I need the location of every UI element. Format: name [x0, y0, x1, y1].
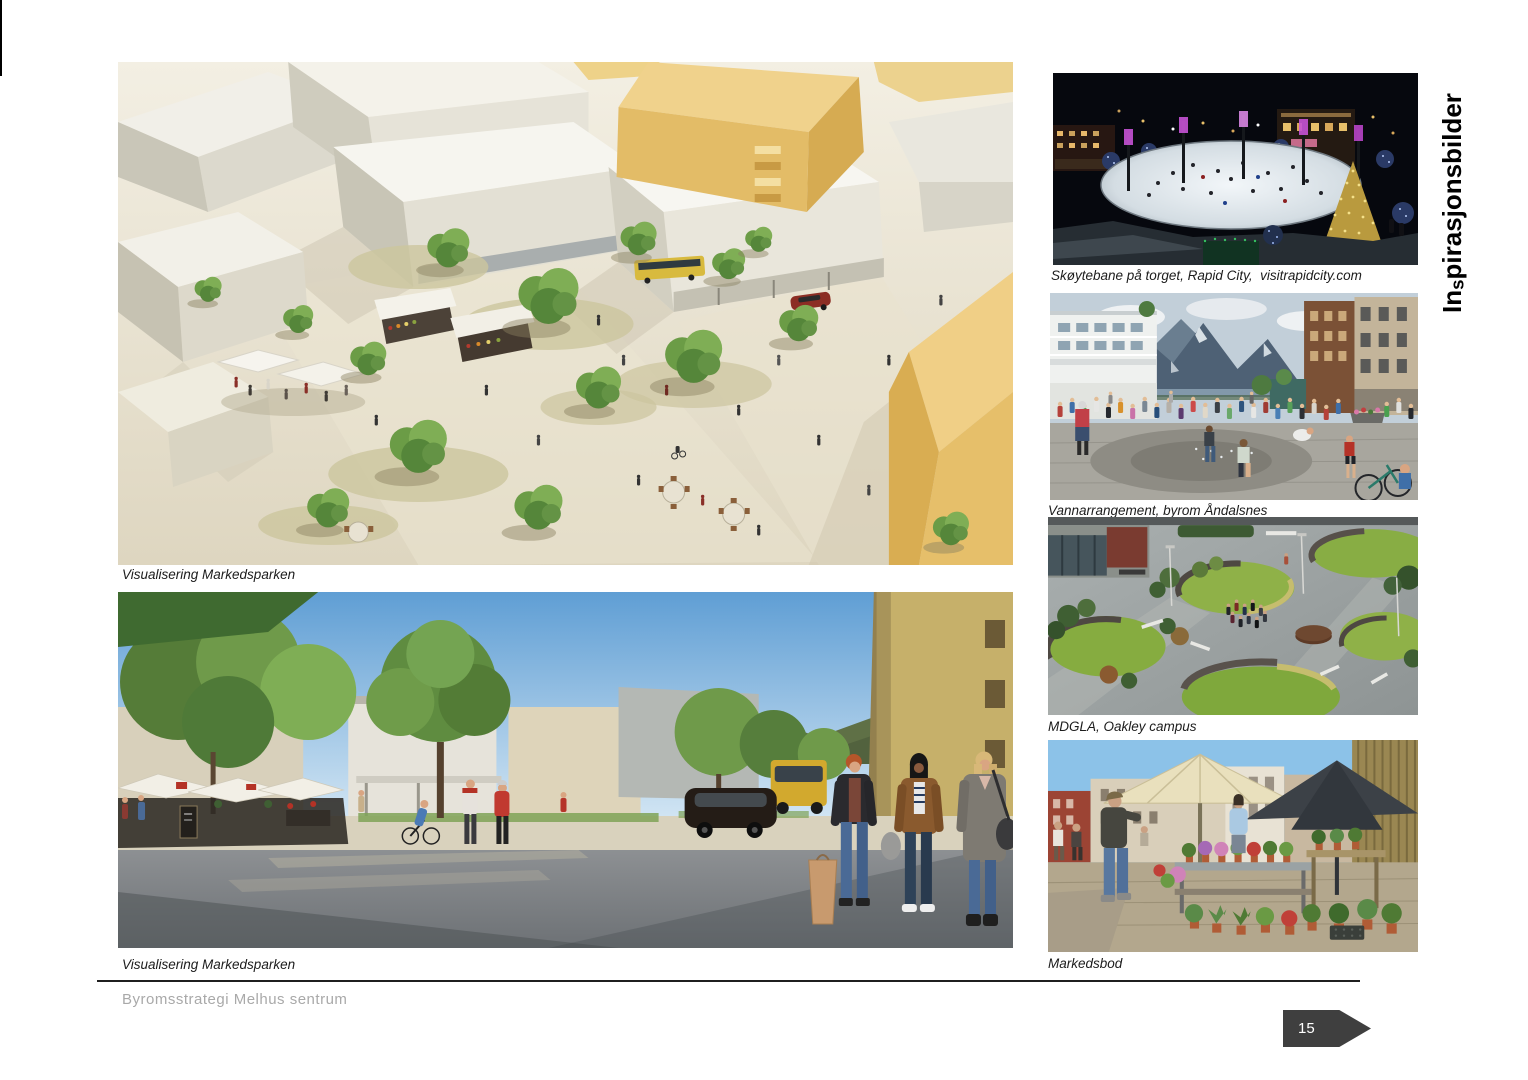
- left-edge-mark: [0, 0, 2, 76]
- page-number: 15: [1298, 1010, 1371, 1047]
- document-page: Visualisering Markedsparken: [0, 0, 1528, 1080]
- vertical-title-prefix: In: [1437, 290, 1467, 313]
- photo-market-stall: [1048, 740, 1418, 952]
- caption-street-render: Visualisering Markedsparken: [122, 957, 295, 972]
- vertical-title-suffix: pirasjonsbilder: [1437, 93, 1467, 279]
- page-number-arrow: 15: [1283, 1010, 1371, 1047]
- photo-aerial-render-markedsparken: [118, 62, 1013, 565]
- footer-rule: [97, 980, 1360, 982]
- footer-document-title: Byromsstrategi Melhus sentrum: [122, 991, 347, 1008]
- photo-mdgla-oakley-campus: [1048, 517, 1418, 715]
- caption-aerial-render: Visualisering Markedsparken: [122, 567, 295, 582]
- vertical-page-title: Inspirasjonsbilder: [1437, 93, 1468, 313]
- caption-market-stall: Markedsbod: [1048, 956, 1122, 971]
- caption-campus: MDGLA, Oakley campus: [1048, 719, 1197, 734]
- caption-ice-rink: Skøytebane på torget, Rapid City, visitr…: [1051, 268, 1362, 283]
- vertical-title-s: s: [1447, 279, 1469, 289]
- caption-water-feature: Vannarrangement, byrom Åndalsnes: [1048, 503, 1267, 518]
- photo-ice-rink-rapid-city: [1053, 73, 1418, 265]
- photo-street-render-markedsparken: [118, 592, 1013, 948]
- photo-water-feature-andalsnes: [1050, 293, 1418, 500]
